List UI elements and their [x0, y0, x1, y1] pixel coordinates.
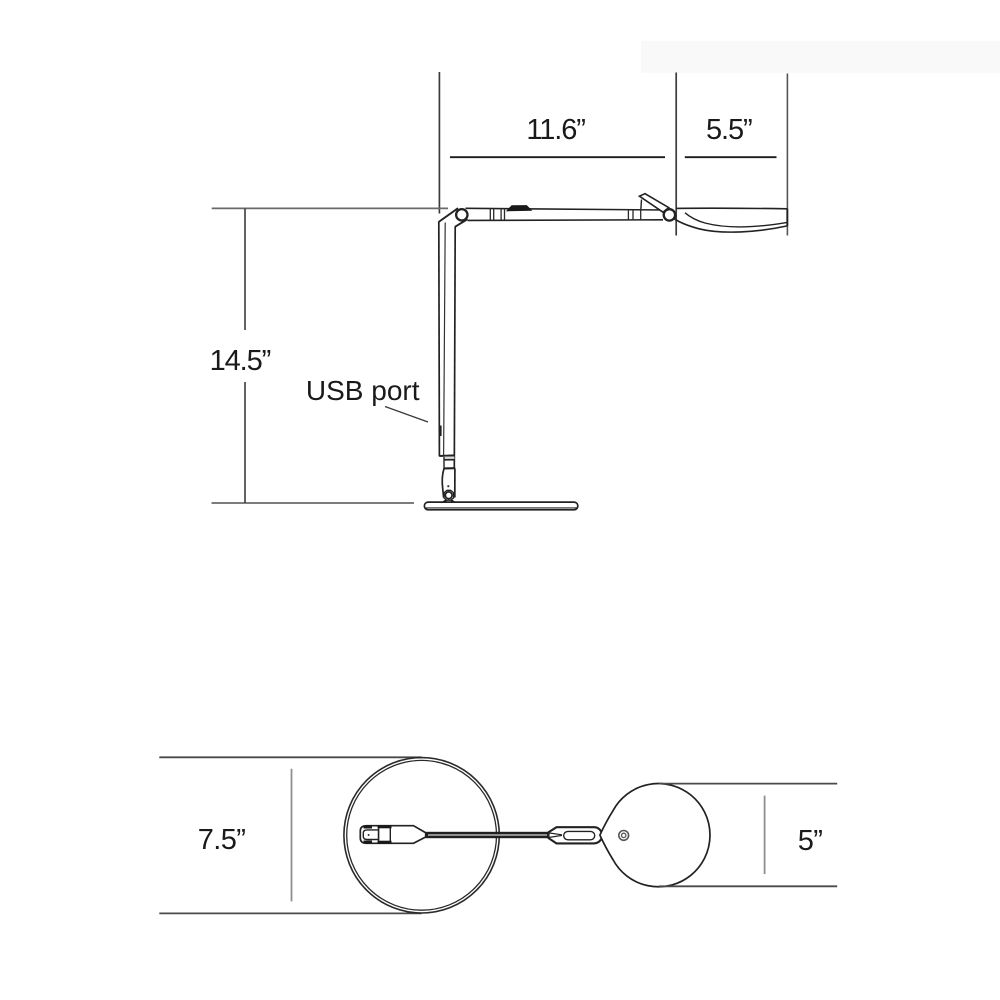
- svg-text:11.6”: 11.6”: [526, 114, 585, 146]
- svg-text:USB port: USB port: [306, 375, 420, 406]
- svg-text:5”: 5”: [798, 825, 823, 857]
- svg-text:5.5”: 5.5”: [706, 114, 752, 146]
- svg-text:14.5”: 14.5”: [210, 345, 271, 377]
- svg-text:7.5”: 7.5”: [198, 824, 246, 856]
